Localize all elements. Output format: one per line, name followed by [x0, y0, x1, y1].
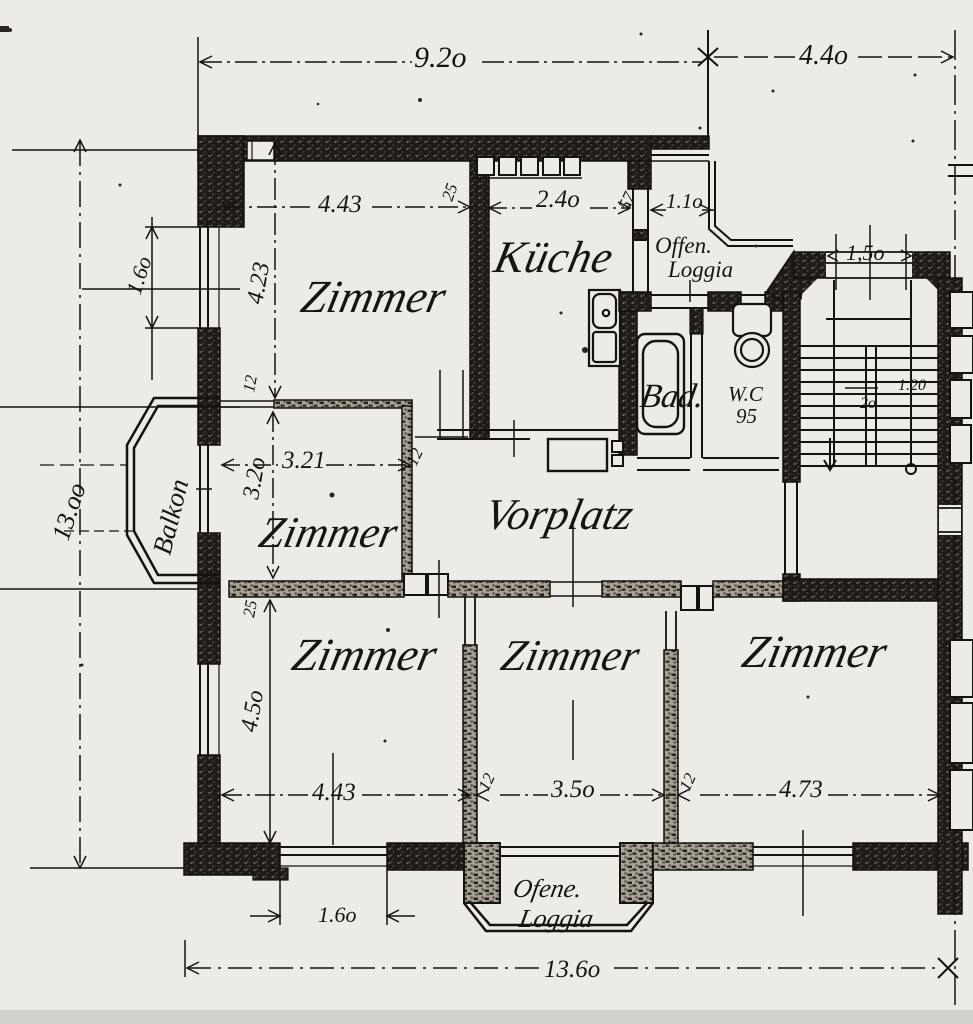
svg-text:W.C: W.C: [728, 382, 764, 406]
svg-text:Bad.: Bad.: [638, 377, 708, 415]
svg-text:1.1o: 1.1o: [666, 189, 703, 213]
svg-text:Offen.: Offen.: [655, 233, 712, 258]
svg-text:1.20: 1.20: [898, 377, 926, 394]
svg-text:Vorplatz: Vorplatz: [481, 489, 638, 538]
svg-text:Zimmer: Zimmer: [497, 630, 645, 679]
svg-text:9.2o: 9.2o: [414, 41, 467, 74]
svg-text:Zimmer: Zimmer: [738, 627, 893, 677]
svg-text:Zimmer: Zimmer: [297, 272, 452, 322]
svg-text:4.4o: 4.4o: [799, 40, 848, 71]
svg-text:4.43: 4.43: [318, 191, 362, 218]
svg-text:4.73: 4.73: [779, 776, 823, 803]
svg-text:Loggia: Loggia: [516, 904, 596, 933]
svg-text:3.21: 3.21: [281, 447, 326, 474]
svg-text:1,5o: 1,5o: [846, 240, 885, 265]
svg-text:Loggia: Loggia: [667, 257, 733, 282]
svg-text:Zimmer: Zimmer: [288, 630, 443, 680]
svg-text:Ofene.: Ofene.: [511, 874, 585, 903]
svg-text:Küche: Küche: [489, 231, 618, 281]
svg-text:25: 25: [239, 599, 261, 619]
svg-text:1.6o: 1.6o: [318, 902, 357, 927]
svg-text:13.6o: 13.6o: [544, 956, 600, 983]
svg-text:95: 95: [736, 404, 757, 428]
svg-text:3.5o: 3.5o: [550, 776, 595, 803]
svg-text:Zimmer: Zimmer: [255, 507, 403, 556]
svg-text:2o: 2o: [860, 395, 876, 412]
svg-text:4.43: 4.43: [312, 779, 356, 806]
svg-text:2.4o: 2.4o: [536, 186, 580, 213]
